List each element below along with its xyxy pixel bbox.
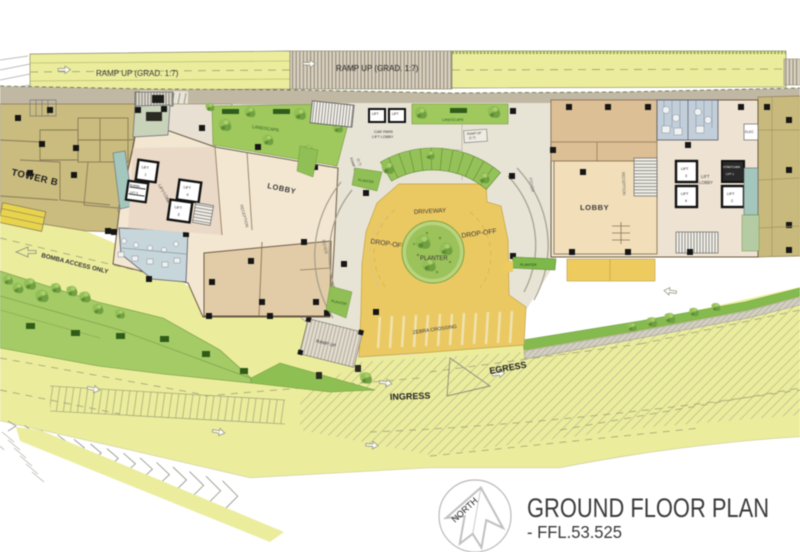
svg-text:GROUND FLOOR PLAN: GROUND FLOOR PLAN xyxy=(527,493,769,523)
svg-text:- FFL.53.525: - FFL.53.525 xyxy=(527,522,622,542)
svg-text:LIFT: LIFT xyxy=(727,192,735,196)
svg-text:LIFT 1: LIFT 1 xyxy=(726,172,734,176)
svg-text:RAMP UP (GRAD. 1:7): RAMP UP (GRAD. 1:7) xyxy=(336,64,419,73)
svg-text:RECEPTION: RECEPTION xyxy=(621,172,627,196)
svg-text:4: 4 xyxy=(685,199,687,203)
svg-text:LIFT: LIFT xyxy=(392,112,399,116)
svg-text:ELEC: ELEC xyxy=(745,130,754,134)
svg-text:LIFT: LIFT xyxy=(681,192,689,196)
svg-text:(1:7): (1:7) xyxy=(469,136,476,140)
svg-text:LOBBY: LOBBY xyxy=(580,203,609,212)
svg-text:RAMP UP (GRAD. 1:7): RAMP UP (GRAD. 1:7) xyxy=(96,69,179,78)
svg-text:PLANTER: PLANTER xyxy=(420,256,448,262)
svg-text:STRETCHER: STRETCHER xyxy=(723,165,740,169)
svg-text:LIFT: LIFT xyxy=(372,112,379,116)
svg-text:LIFT: LIFT xyxy=(701,174,710,179)
svg-text:LIFT LOBBY: LIFT LOBBY xyxy=(372,135,394,139)
svg-text:2: 2 xyxy=(731,199,733,203)
svg-text:LOBBY: LOBBY xyxy=(699,180,713,185)
svg-text:3: 3 xyxy=(685,174,687,178)
svg-text:LIFT: LIFT xyxy=(681,167,689,171)
svg-text:LANDSCAPE: LANDSCAPE xyxy=(442,118,464,122)
svg-text:INGRESS: INGRESS xyxy=(390,391,431,402)
svg-text:PLANTER: PLANTER xyxy=(520,263,537,267)
svg-text:CAR PARK: CAR PARK xyxy=(374,130,394,134)
